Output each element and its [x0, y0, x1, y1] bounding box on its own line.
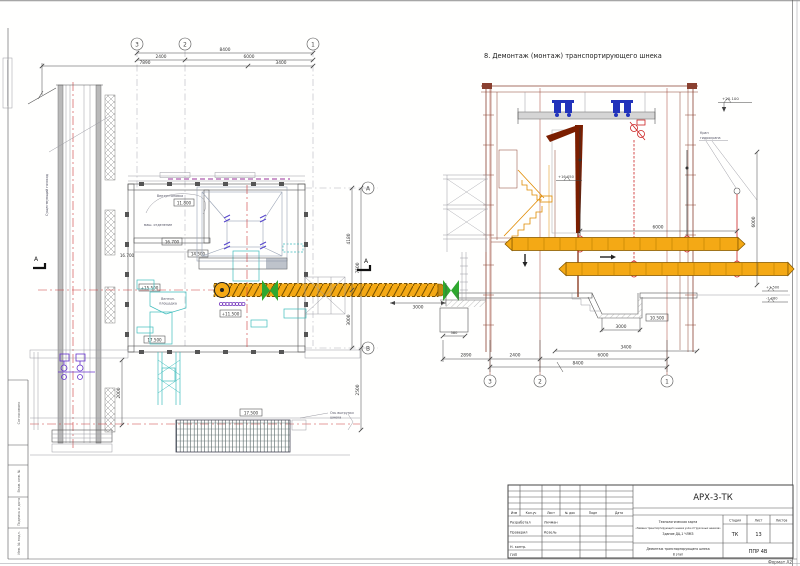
corner-ticks: [224, 215, 266, 249]
tb-list-v: 13: [755, 532, 761, 538]
elev-right-flags: +1.500 -1.280: [762, 286, 788, 303]
section-rigging: Кран гидрокрана: [576, 128, 758, 277]
section-bottom-dims: 3400 2890 2400 6000 8400 3 2 1: [441, 340, 699, 387]
dim-top-8400: 8400: [220, 47, 231, 53]
trough-drive-box: [266, 258, 287, 269]
dim-top-2400: 2400: [156, 54, 167, 60]
stamp-vzam: Взам. инв. №: [17, 469, 21, 492]
dim-h6000: 6000: [653, 225, 664, 231]
monorail-beam: [518, 112, 655, 119]
purple-bolt-row: [219, 302, 245, 305]
tower-attachment: [105, 210, 115, 255]
dim-b2890: 2890: [461, 353, 472, 359]
format-note: Формат А2: [768, 559, 792, 564]
axis-label-1: 1: [311, 42, 315, 48]
tb-proj-1: Технологическая карта: [658, 520, 698, 524]
tb-role-1: Разработал: [510, 521, 531, 525]
section-letter-left: А: [34, 256, 39, 263]
plan-view: 3 2 1 8400 2400 6000 7890 3400 Существую…: [28, 38, 459, 455]
elev-top-flag: +20.100: [718, 96, 752, 112]
tower-attachment: [105, 95, 115, 180]
tb-col-data: Дата: [615, 511, 623, 515]
tb-col-ndoc: № док: [565, 511, 575, 515]
tb-col-izm: Изм: [511, 511, 518, 515]
sec-axis-label-3: 3: [488, 379, 492, 385]
label-vent: Вентустановка: [157, 194, 183, 198]
section-view: 8. Демонтаж (монтаж) транспортирующего ш…: [440, 52, 794, 387]
tb-listov-h: Листов: [776, 519, 788, 523]
tb-proj-3: Здание ДЦ-1 ЧЛМЗ: [663, 532, 694, 536]
lower-screw: [566, 263, 788, 276]
elev-pit: 10.500: [650, 315, 665, 320]
section-title: 8. Демонтаж (монтаж) транспортирующего ш…: [484, 52, 662, 60]
stamp-agreed: Согласовано: [17, 402, 21, 425]
section-pit: 3000 10.500 +1.500 -1.280: [458, 286, 790, 333]
section-letter-right: А: [364, 258, 369, 265]
axis-label-A: А: [366, 186, 370, 192]
dim-top-7890: 7890: [140, 60, 151, 66]
tb-stage-v: ТК: [731, 532, 739, 538]
plan-bottom: 17.500 2000 Ось выгрузки шнека: [30, 350, 360, 455]
label-ploshchadka-1: Вентил.: [161, 297, 175, 301]
tb-list-h: Лист: [755, 519, 763, 523]
section-stairs: [504, 165, 552, 242]
tb-stage-h: Стадия: [729, 519, 741, 523]
sec-axis-label-2: 2: [538, 379, 542, 385]
section-screws: +16.050 6000 6000: [505, 150, 794, 287]
left-stamp-column: Согласовано Взам. инв. № Подпись и дата …: [8, 380, 28, 559]
tb-name-1: Личман: [544, 521, 558, 525]
axis-note-1: Ось выгрузки: [330, 411, 354, 415]
dim-v6000: 6000: [751, 216, 757, 227]
label-ploshchadka-2: площадка: [159, 302, 177, 306]
column-ticks: [483, 115, 696, 325]
cad-drawing: Согласовано Взам. инв. № Подпись и дата …: [0, 0, 800, 566]
axis-note-2: шнека: [330, 416, 341, 420]
dim-pit3000: 3000: [616, 324, 627, 330]
tb-col-koluch: Кол.уч: [526, 511, 537, 515]
stair-plan-1: [233, 251, 259, 281]
dim-top-3400: 3400: [276, 60, 287, 66]
elev-11500: +11.500: [222, 311, 240, 316]
axis-label-2: 2: [183, 42, 187, 48]
plan-roof-strip: [128, 173, 305, 182]
tb-col-list: Лист: [547, 511, 555, 515]
dim-right-3000: 3000: [346, 314, 352, 325]
dim-2000: 2000: [116, 387, 122, 398]
dim-b2400: 2400: [510, 353, 521, 359]
monorail-hoists: +20.100: [518, 92, 752, 140]
sec-axis-label-1: 1: [665, 379, 669, 385]
grate: [176, 420, 290, 452]
plan-funnel: [197, 187, 287, 269]
dim-top-6000: 6000: [244, 54, 255, 60]
dim-b6000: 6000: [598, 353, 609, 359]
elev-17500: 17.500: [147, 337, 162, 342]
doc-code: АРХ-3-ТК: [693, 493, 733, 503]
dim-b3400: 3400: [621, 345, 632, 351]
tower-base-grate: [52, 444, 112, 452]
chain-block: [630, 120, 645, 140]
elev-top-text: +20.100: [722, 96, 739, 101]
dim-b8400: 8400: [573, 361, 584, 367]
title-block: Изм Кол.уч Лист № док Подп Дата Разработ…: [508, 485, 793, 564]
elev-16700b: 16.700: [120, 253, 135, 258]
dim-out-3000: 3000: [413, 305, 424, 311]
crane-label-2: гидрокрана: [700, 136, 721, 140]
dim-580: 580: [451, 331, 459, 335]
elev-r2: -1.280: [766, 297, 778, 301]
stamp-inv: Инв. № подл.: [17, 531, 21, 554]
tb-sheetname-1: Демонтаж транспортирующего шнека: [646, 547, 709, 551]
crane-label-1: Кран: [700, 131, 709, 135]
plan-tower: Существующий газоход А: [28, 82, 115, 450]
drawing-sheet: Согласовано Взам. инв. № Подпись и дата …: [0, 0, 800, 566]
dim-right-2500: 2500: [355, 384, 361, 395]
label-mash: маш. отделение: [144, 223, 172, 227]
plan-right-dims: А В 4180 3000 7500 2500 А: [305, 182, 378, 432]
tb-sheetname-2: 8 этап: [673, 553, 683, 557]
tb-role-4: ГИП: [510, 553, 518, 557]
elev-11800: 11.800: [177, 200, 192, 205]
section-mark-A-left: [33, 263, 45, 268]
tb-role-2: Проверил: [510, 531, 527, 535]
elev-15500: +15.500: [141, 285, 159, 290]
dim-right-4180: 4180: [346, 233, 352, 244]
tb-name-2: Козель: [544, 531, 557, 535]
section-frame: [481, 83, 698, 352]
dim-right-7500: 7500: [355, 262, 361, 273]
tb-col-podp: Подп: [589, 511, 597, 515]
axis-label-B: В: [366, 346, 370, 352]
tower-annotation: Существующий газоход: [45, 173, 49, 216]
tower-attachment: [105, 388, 115, 432]
tb-role-3: Н. контр.: [510, 545, 526, 549]
elev-16700: 16.700: [165, 239, 180, 244]
stamp-sign: Подпись и дата: [17, 498, 21, 526]
tb-proj-2: «Замена транспортирующего шнека узла отг…: [635, 526, 721, 530]
cyan-columns: [158, 352, 180, 405]
elev-17500b: 17.500: [244, 410, 259, 415]
axis-label-3: 3: [135, 42, 139, 48]
tower-attachment: [105, 287, 115, 323]
tb-docnum: ППР 4В: [749, 549, 768, 555]
section-left-structures: 580: [440, 175, 488, 338]
elev-r1: +1.500: [766, 286, 780, 290]
